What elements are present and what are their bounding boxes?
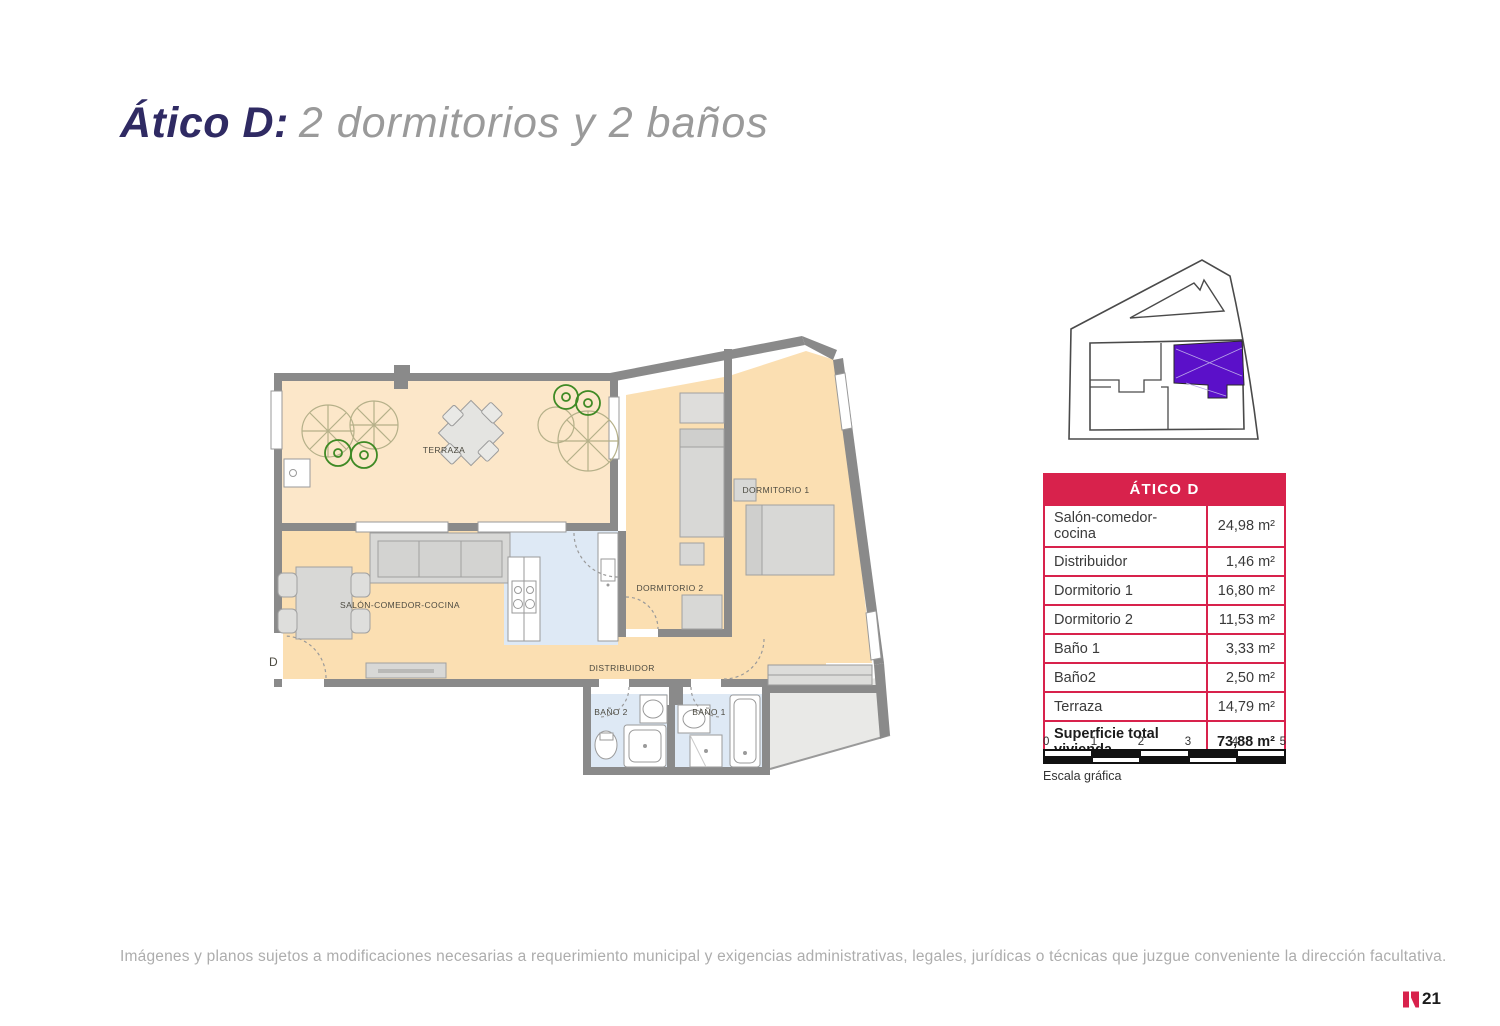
scale-bar [1043, 749, 1286, 764]
kitchen-counter [598, 533, 618, 641]
dorm2-wardrobe [680, 393, 724, 423]
label-entrance: D [269, 655, 278, 669]
graphic-scale: 0 1 2 3 4 5 Escala gráfica [1043, 736, 1286, 783]
table-row: Dormitorio 211,53 m² [1044, 605, 1285, 634]
page-number: 21 [1403, 989, 1441, 1009]
label-terraza: TERRAZA [423, 445, 465, 455]
table-row: Distribuidor1,46 m² [1044, 547, 1285, 576]
table-row: Salón-comedor-cocina24,98 m² [1044, 505, 1285, 547]
table-row: Terraza14,79 m² [1044, 692, 1285, 721]
page-title-unit: Ático D: [120, 99, 289, 147]
disclaimer-text: Imágenes y planos sujetos a modificacion… [120, 948, 1390, 966]
brand-logo-icon [1403, 991, 1419, 1008]
floorplan: TERRAZA SALÓN-COMEDOR-COCINA DORMITORIO … [266, 333, 906, 798]
label-distribuidor: DISTRIBUIDOR [589, 663, 655, 673]
bano2-sink [643, 700, 663, 718]
terraza-window-right [609, 397, 619, 459]
dorm2-nightstand [680, 543, 704, 565]
label-dormitorio2: DORMITORIO 2 [637, 583, 704, 593]
brochure-page: { "page": { "title_bold": "Ático D:", "t… [0, 0, 1500, 1026]
area-table-header: ÁTICO D [1044, 474, 1285, 505]
salon-window-2 [478, 522, 566, 532]
scale-caption: Escala gráfica [1043, 769, 1286, 783]
dorm2-pillow [680, 429, 724, 447]
area-table: ÁTICO D Salón-comedor-cocina24,98 m² Dis… [1043, 473, 1286, 764]
table-row: Dormitorio 116,80 m² [1044, 576, 1285, 605]
scale-ticks: 0 1 2 3 4 5 [1043, 736, 1286, 748]
terraza-window-left [271, 391, 282, 449]
page-number-value: 21 [1422, 989, 1441, 1009]
table-row: Baño 13,33 m² [1044, 634, 1285, 663]
label-dormitorio1: DORMITORIO 1 [743, 485, 810, 495]
bano2-cistern [600, 733, 613, 740]
page-title-description: 2 dormitorios y 2 baños [299, 99, 769, 147]
dorm1-pillow [746, 505, 762, 575]
building-locator [1056, 250, 1288, 450]
sofa-seat [378, 541, 502, 577]
table-row: Baño22,50 m² [1044, 663, 1285, 692]
sideboard-detail [378, 669, 434, 673]
label-bano2: BAÑO 2 [594, 707, 628, 717]
label-salon: SALÓN-COMEDOR-COCINA [340, 600, 460, 610]
salon-window-1 [356, 522, 448, 532]
page-title: Ático D:2 dormitorios y 2 baños [120, 99, 769, 148]
dorm2-dresser [682, 595, 722, 629]
label-bano1: BAÑO 1 [692, 707, 726, 717]
